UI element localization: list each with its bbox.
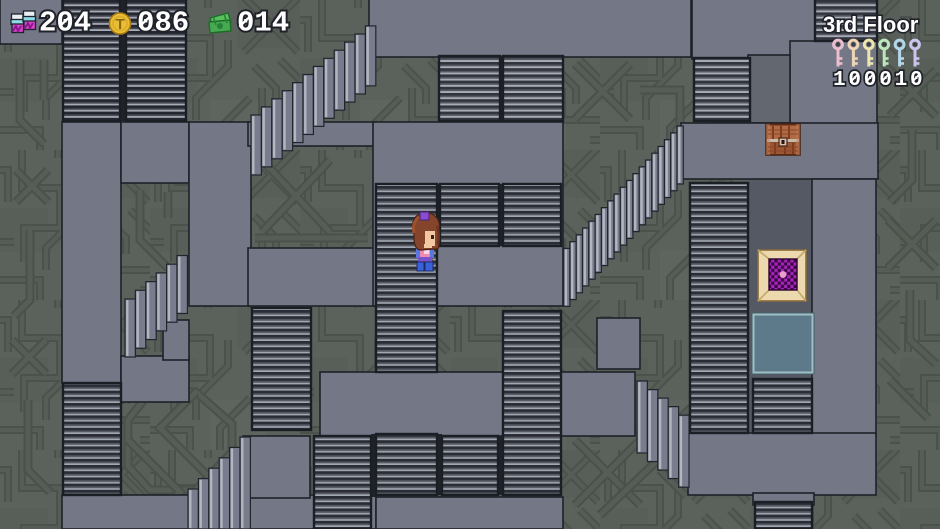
svg-text:1: 1 — [833, 69, 846, 92]
svg-text:0: 0 — [864, 69, 877, 92]
svg-text:T: T — [116, 16, 125, 33]
svg-text:0: 0 — [848, 69, 861, 92]
svg-text:204: 204 — [39, 7, 91, 40]
svg-text:3rd Floor: 3rd Floor — [823, 12, 919, 37]
svg-text:0: 0 — [910, 69, 923, 92]
svg-text:1: 1 — [895, 69, 908, 92]
svg-text:0: 0 — [879, 69, 892, 92]
